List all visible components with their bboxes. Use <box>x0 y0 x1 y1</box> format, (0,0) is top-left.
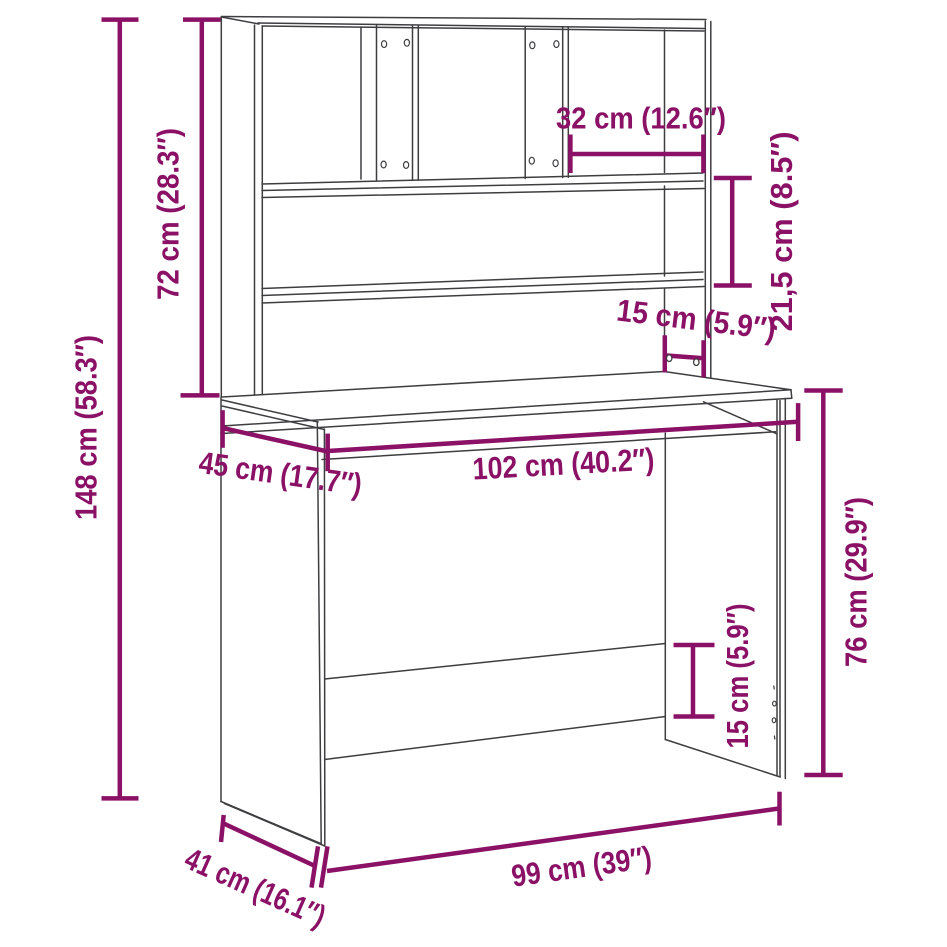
svg-text:32 cm (12.6″): 32 cm (12.6″) <box>556 101 726 136</box>
svg-text:72 cm (28.3″): 72 cm (28.3″) <box>151 128 186 300</box>
svg-text:148 cm (58.3″): 148 cm (58.3″) <box>69 335 104 520</box>
svg-text:15 cm (5.9″): 15 cm (5.9″) <box>720 604 755 749</box>
svg-text:21,5 cm (8.5″): 21,5 cm (8.5″) <box>764 132 799 332</box>
svg-text:76 cm (29.9″): 76 cm (29.9″) <box>839 497 874 667</box>
